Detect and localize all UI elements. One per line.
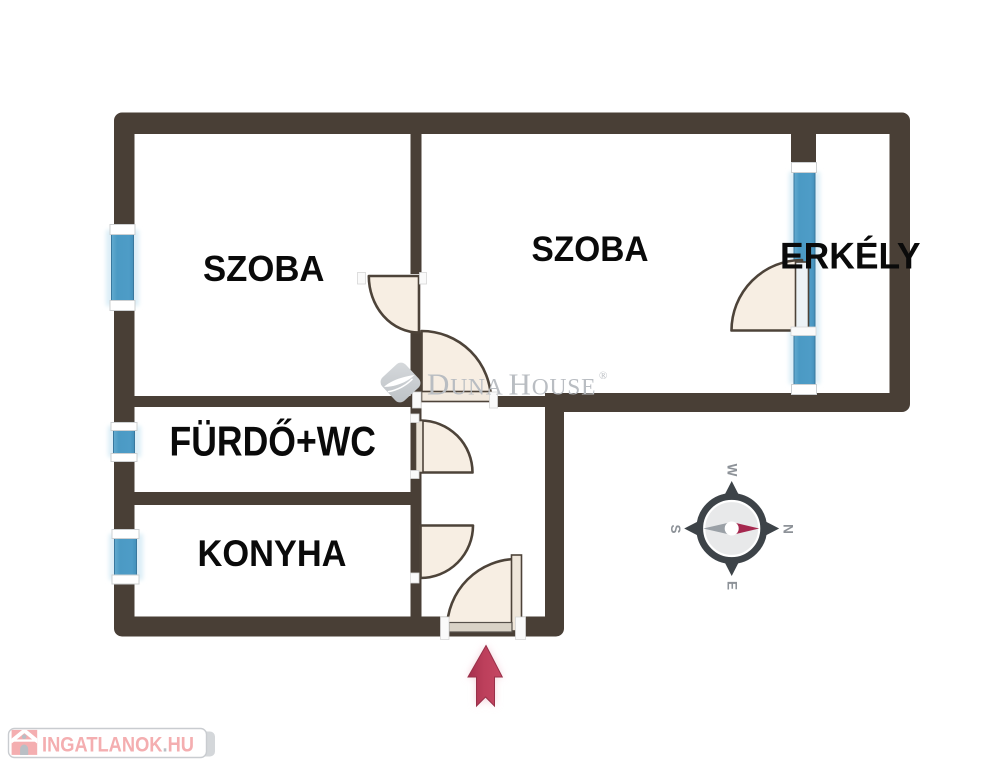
svg-text:W: W: [725, 464, 740, 477]
svg-text:KONYHA: KONYHA: [198, 532, 347, 574]
svg-text:SZOBA: SZOBA: [203, 248, 325, 289]
svg-text:S: S: [668, 524, 683, 533]
svg-text:®: ®: [599, 370, 607, 382]
svg-text:ERKÉLY: ERKÉLY: [780, 236, 921, 277]
svg-text:E: E: [725, 581, 740, 590]
svg-text:N: N: [781, 524, 796, 534]
svg-text:SZOBA: SZOBA: [532, 230, 649, 269]
svg-text:FÜRDŐ+WC: FÜRDŐ+WC: [170, 418, 377, 465]
svg-text:INGATLANOK.HU: INGATLANOK.HU: [42, 733, 194, 757]
